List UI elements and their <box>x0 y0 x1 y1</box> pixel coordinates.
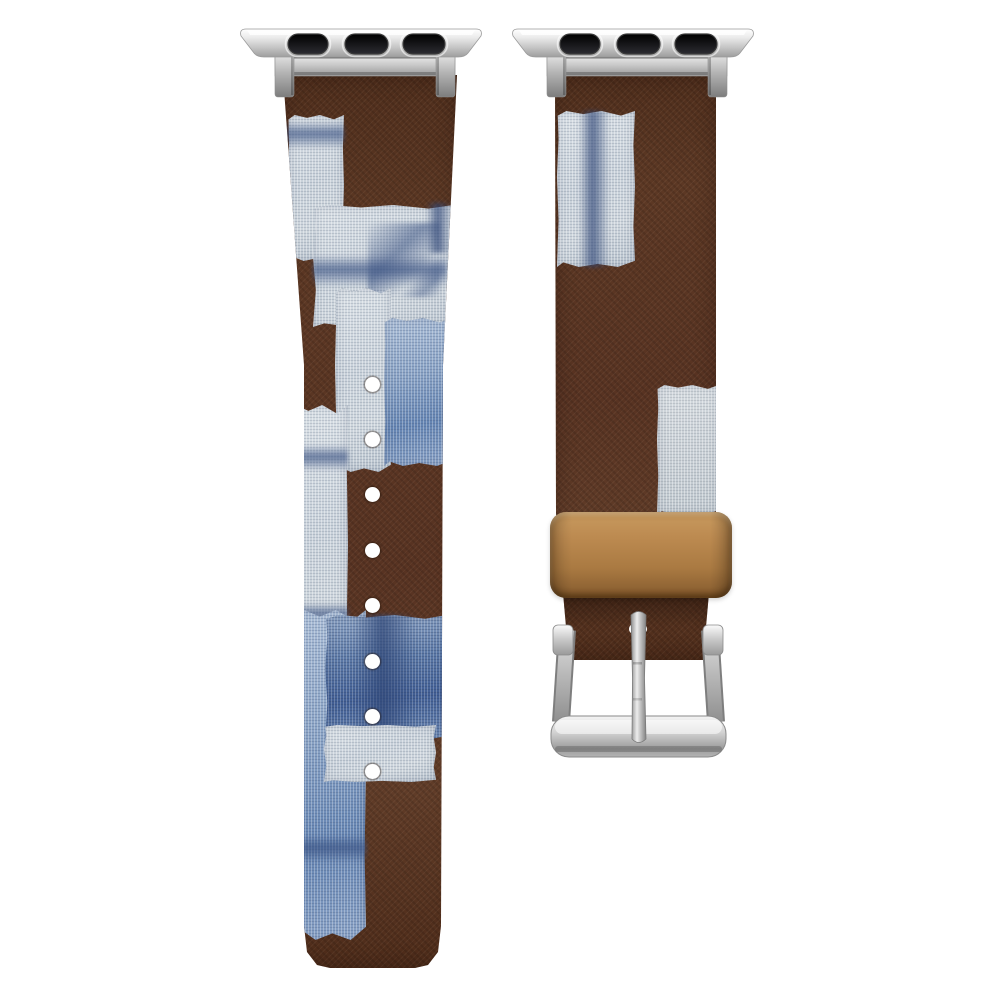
strap-hole <box>365 432 380 447</box>
adapter-slots <box>286 32 448 57</box>
adapter-bar <box>241 29 482 57</box>
buckle-prong <box>631 612 646 743</box>
lug-adapter-left <box>238 28 484 98</box>
dye-streak <box>426 203 452 253</box>
strap-hole <box>365 487 380 502</box>
fabric-patch <box>324 725 436 782</box>
dye-streak <box>296 835 366 863</box>
fabric-patch <box>384 318 452 466</box>
adapter-slots <box>558 32 720 57</box>
dye-streak <box>354 615 416 741</box>
dye-streak <box>313 255 447 287</box>
strap-hole <box>365 377 380 392</box>
strap-hole <box>365 543 380 558</box>
lug-adapter-right <box>510 28 756 98</box>
dye-streak <box>288 445 348 471</box>
strap-hole <box>365 764 380 779</box>
keeper-loop <box>550 512 732 598</box>
left-strap <box>280 75 460 968</box>
strap-hole <box>365 598 380 613</box>
fabric-patch <box>657 385 719 515</box>
dye-streak <box>286 121 344 149</box>
adapter-bar <box>513 29 754 57</box>
dye-streak <box>579 111 609 267</box>
strap-hole <box>365 654 380 669</box>
product-photo <box>0 0 1000 1000</box>
left-strap-fabric <box>280 75 460 968</box>
buckle <box>545 600 730 765</box>
strap-hole <box>365 709 380 724</box>
